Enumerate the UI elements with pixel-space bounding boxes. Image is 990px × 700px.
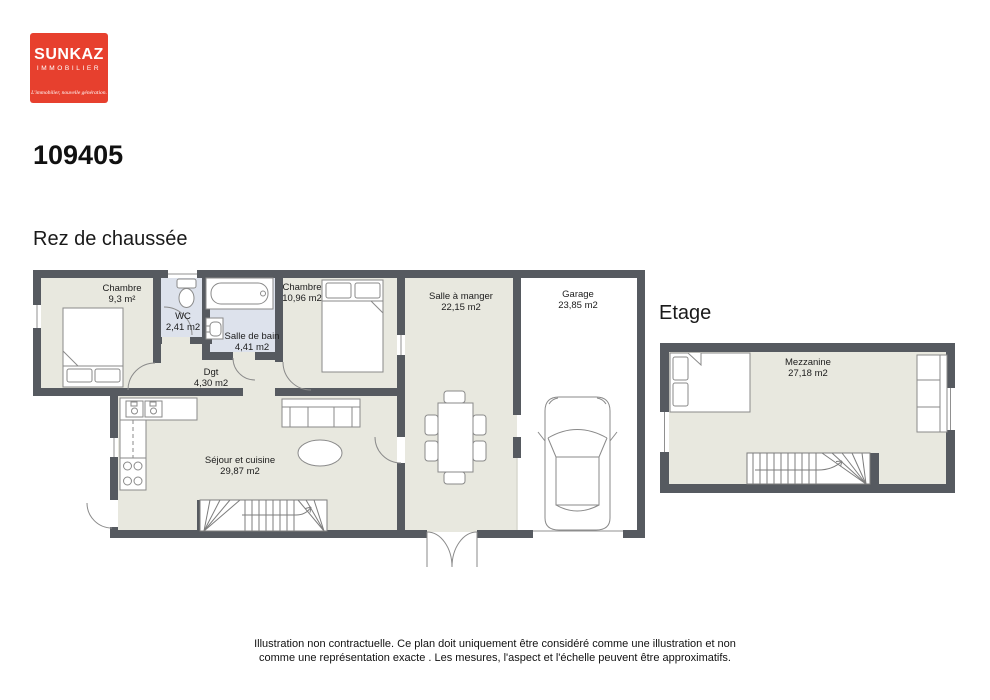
wardrobe-icon <box>917 355 947 432</box>
room-label-chambre-1: Chambre 9,3 m² <box>102 283 141 305</box>
room-label-garage: Garage 23,85 m2 <box>558 289 598 311</box>
brand-subtitle: IMMOBILIER <box>30 65 108 72</box>
coffee-table-icon <box>298 440 342 466</box>
kitchen-counter-icon <box>120 398 197 420</box>
bathtub-icon <box>206 278 273 309</box>
ground-floor-plan <box>33 270 645 567</box>
sofa-icon <box>282 399 360 427</box>
room-label-wc: WC 2,41 m2 <box>166 311 200 333</box>
upper-floor-title: Etage <box>659 302 711 325</box>
bed-icon <box>322 280 383 372</box>
stove-icon <box>120 458 146 490</box>
brand-name: SUNKAZ <box>30 46 108 64</box>
page: SUNKAZ IMMOBILIER L'immobilier, nouvelle… <box>0 0 990 700</box>
door-arc-icon <box>87 503 112 528</box>
stairs-icon <box>200 500 327 531</box>
double-door-icon <box>427 532 452 567</box>
room-label-mezzanine: Mezzanine 27,18 m2 <box>785 357 831 379</box>
room-label-chambre-2: Chambre 10,96 m2 <box>282 282 322 304</box>
room-label-dgt: Dgt 4,30 m2 <box>194 367 228 389</box>
bed-icon <box>670 353 750 412</box>
kitchen-cabinet-icon <box>120 420 146 458</box>
stairs-icon <box>747 453 870 484</box>
room-label-salle-de-bain: Salle de bain 4,41 m2 <box>225 331 280 353</box>
floor-plan-canvas <box>0 0 990 700</box>
sink-icon <box>206 318 223 339</box>
room-label-salle-a-manger: Salle à manger 22,15 m2 <box>429 291 493 313</box>
ground-floor-title: Rez de chaussée <box>33 228 188 251</box>
disclaimer-line-1: Illustration non contractuelle. Ce plan … <box>0 638 990 652</box>
bed-icon <box>63 308 123 387</box>
double-door-icon <box>452 532 477 567</box>
toilet-icon <box>177 279 196 308</box>
brand-logo: SUNKAZ IMMOBILIER L'immobilier, nouvelle… <box>30 33 108 103</box>
disclaimer: Illustration non contractuelle. Ce plan … <box>0 638 990 665</box>
brand-tagline: L'immobilier, nouvelle génération. <box>30 90 108 96</box>
reference-number: 109405 <box>33 140 123 171</box>
disclaimer-line-2: comme une représentation exacte . Les me… <box>0 652 990 666</box>
room-label-sejour: Séjour et cuisine 29,87 m2 <box>205 455 275 477</box>
